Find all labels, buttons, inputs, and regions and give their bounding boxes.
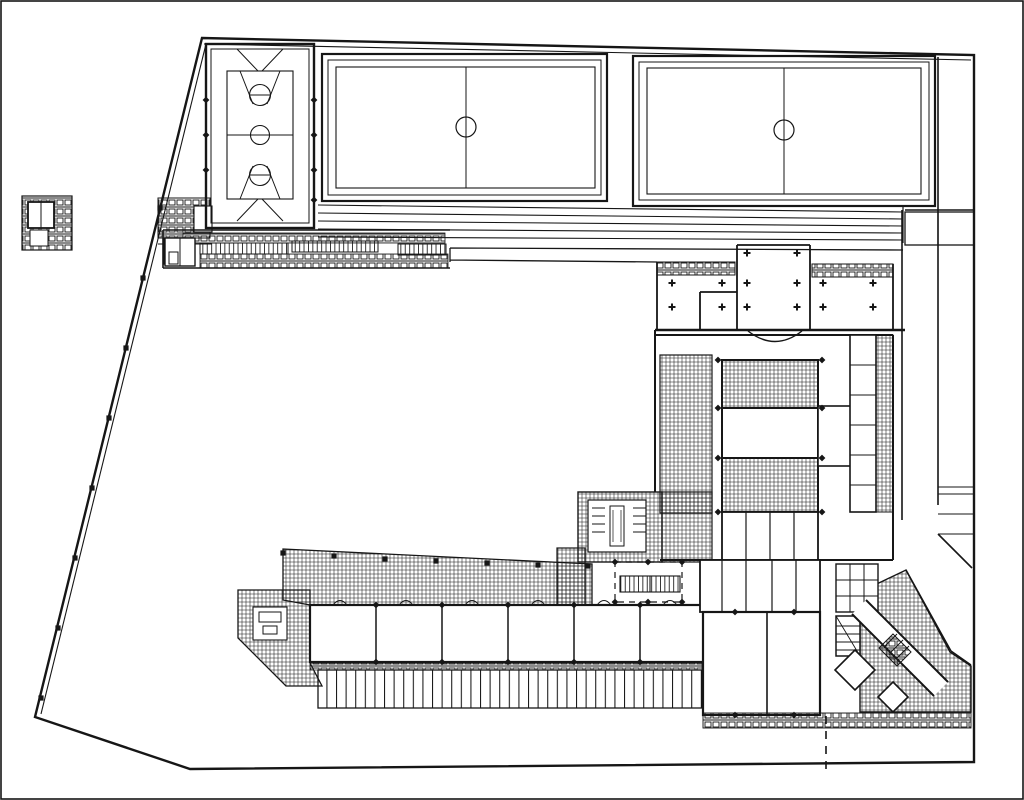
north-wing: [163, 230, 450, 268]
cell-row: [292, 241, 378, 252]
site-plan-drawing: [0, 0, 1024, 800]
east-hatch-strip: [876, 335, 893, 512]
cell-row: [200, 243, 288, 254]
corridor-hatch-strip: [660, 355, 712, 513]
path-steps: [938, 487, 974, 534]
perimeter-path: [902, 57, 974, 568]
hatched-hall-1: [722, 360, 818, 408]
south-east-wing: [700, 560, 971, 770]
south-paving-band: [703, 713, 971, 728]
detached-kiosk: [22, 196, 72, 250]
classroom-wing: [310, 601, 710, 671]
mid-room: [722, 408, 818, 458]
paving-dots-band: [310, 663, 702, 670]
main-building: [557, 245, 905, 608]
scissor-stair: [836, 616, 860, 656]
court-fence-ticks: [203, 97, 318, 204]
wc-stair-core: [578, 492, 712, 562]
hatched-hall-2: [722, 458, 818, 512]
games-court-west: [322, 54, 607, 201]
basketball-court: [203, 44, 318, 228]
pergola-strip: [318, 670, 702, 708]
games-court-east: [633, 56, 935, 206]
cell-row: [398, 244, 446, 255]
scanned-drawing-sheet: [0, 0, 1024, 800]
colonnade: [655, 245, 905, 342]
entrance-canopy-arc: [748, 331, 802, 342]
west-fence-inner-line: [41, 44, 206, 714]
